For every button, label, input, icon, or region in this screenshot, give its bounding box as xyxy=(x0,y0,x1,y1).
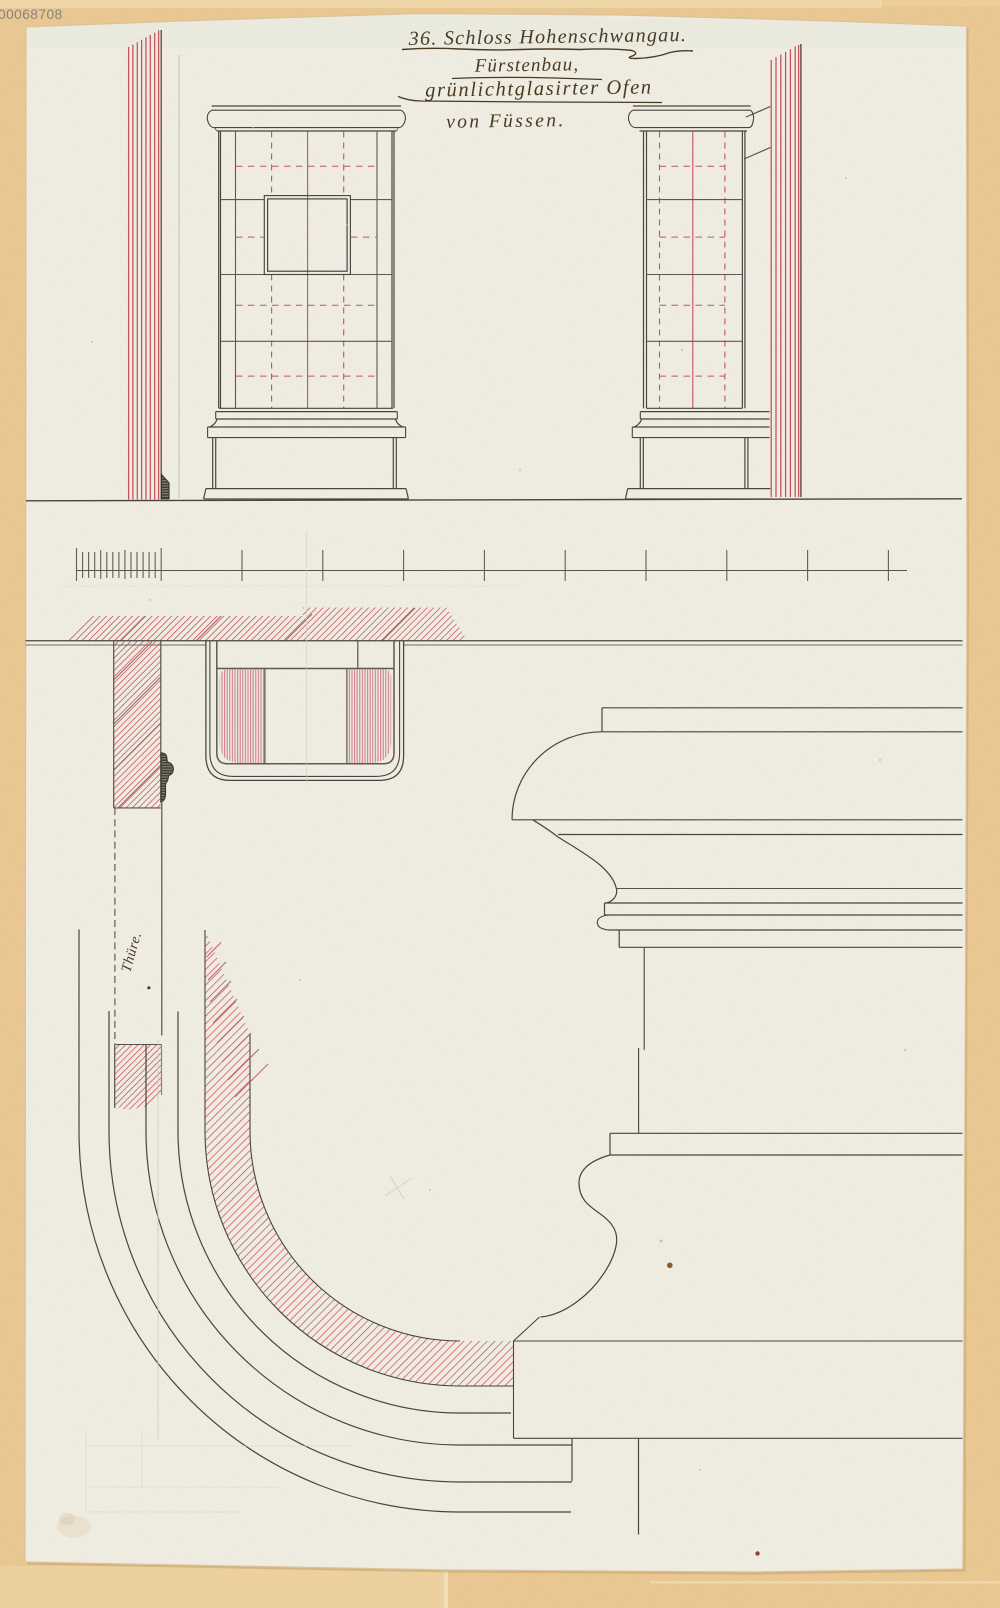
svg-text:Fürstenbau,: Fürstenbau, xyxy=(474,54,580,76)
svg-text:von Füssen.: von Füssen. xyxy=(446,110,566,133)
svg-text:36. Schloss Hohenschwangau.: 36. Schloss Hohenschwangau. xyxy=(408,24,688,50)
svg-text:grünlichtglasirter Ofen: grünlichtglasirter Ofen xyxy=(425,76,653,101)
